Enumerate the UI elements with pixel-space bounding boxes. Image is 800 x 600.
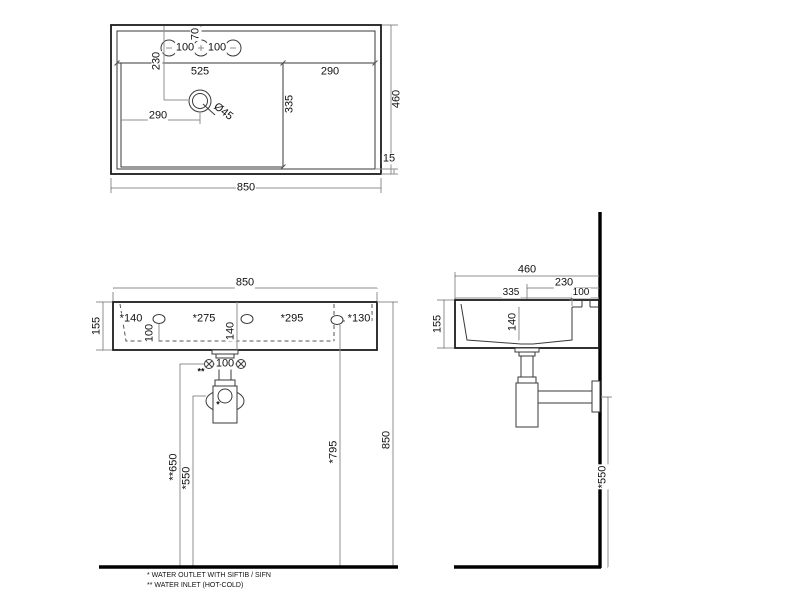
fv-width-label: 850: [235, 278, 255, 289]
tv-basin-depth-label: 335: [285, 94, 296, 114]
fv-outlet-mark: *: [215, 401, 221, 410]
fv-side-hole-height-label: *795: [329, 440, 340, 465]
footnote-water-inlet: ** WATER INLET (HOT-COLD): [147, 581, 243, 591]
sv-outlet-height-label: *550: [598, 465, 609, 490]
fv-inlet-height-label: **650: [169, 453, 180, 482]
fv-hole-height-mid-label: 140: [226, 321, 237, 341]
fv-gap2-label: *275: [192, 314, 217, 325]
fv-inlet-gap-label: 100: [215, 359, 235, 370]
sv-hole-to-wall-label: 100: [572, 288, 591, 298]
fv-gap4-label: *130: [347, 314, 372, 325]
sv-depth-label: 460: [517, 265, 537, 276]
footnote-water-outlet: * WATER OUTLET WITH SIFTIB / SIFN: [147, 571, 271, 581]
sv-basin-depth-label: 335: [502, 288, 521, 298]
tv-rim-label: 15: [382, 154, 396, 165]
tv-holes-from-back-label: 70: [191, 27, 202, 41]
front-view: [96, 288, 398, 567]
tv-deck-width-label: 290: [320, 67, 340, 78]
sv-drain-to-wall-label: 230: [554, 278, 574, 289]
tv-basin-width-label: 525: [190, 67, 210, 78]
fv-rim-height-label: 850: [382, 430, 393, 450]
fv-height-label: 155: [92, 316, 103, 336]
tv-width-label: 850: [236, 183, 256, 194]
fv-outlet-height-label: *550: [182, 466, 193, 491]
tv-depth-label: 460: [392, 89, 403, 109]
fv-gap3-label: *295: [280, 314, 305, 325]
fv-gap1-label: *140: [119, 314, 144, 325]
technical-drawing-canvas: 100 100 70 230 525 290 290 Ø45 335 15 46…: [0, 0, 800, 600]
sv-height-label: 155: [433, 314, 444, 334]
fv-inlet-mark: **: [196, 368, 205, 377]
tv-hole-gap-left-label: 100: [175, 43, 195, 54]
sv-inner-depth-label: 140: [508, 312, 519, 332]
tv-hole-gap-right-label: 100: [207, 43, 227, 54]
fv-hole-height-left-label: 100: [145, 323, 156, 343]
tv-drain-from-left-label: 290: [148, 111, 168, 122]
tv-drain-from-back-label: 230: [152, 51, 163, 71]
